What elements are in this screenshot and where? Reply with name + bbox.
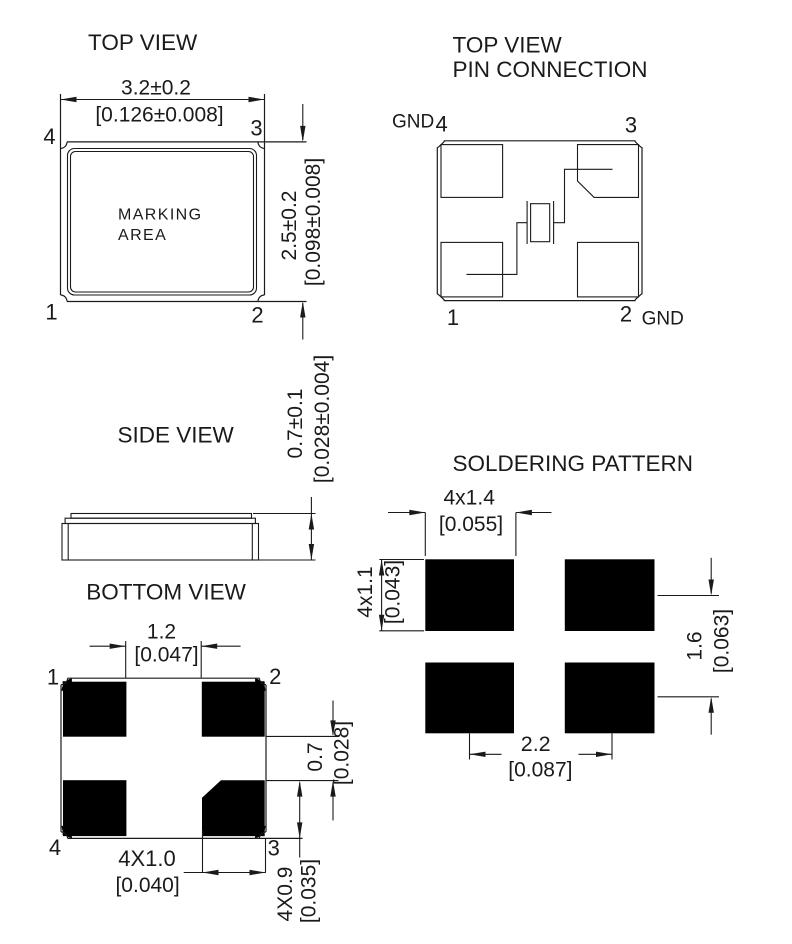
svg-text:4X0.9: 4X0.9 [274, 867, 297, 922]
svg-text:GND: GND [642, 309, 684, 330]
svg-text:[0.087]: [0.087] [508, 759, 572, 782]
svg-text:SIDE VIEW: SIDE VIEW [118, 423, 235, 448]
svg-text:2.2: 2.2 [521, 732, 551, 756]
svg-text:4x1.1: 4x1.1 [354, 566, 377, 617]
svg-text:4X1.0: 4X1.0 [118, 846, 176, 871]
svg-text:2: 2 [620, 302, 632, 327]
svg-text:[0.063]: [0.063] [711, 609, 734, 673]
svg-text:PIN CONNECTION: PIN CONNECTION [453, 57, 648, 82]
svg-text:AREA: AREA [118, 227, 167, 244]
svg-text:[0.040]: [0.040] [115, 874, 179, 897]
svg-text:[0.047]: [0.047] [134, 644, 198, 667]
svg-text:1.2: 1.2 [147, 621, 176, 644]
svg-text:[0.028±0.004]: [0.028±0.004] [311, 355, 334, 483]
svg-text:3: 3 [625, 113, 637, 138]
svg-text:[0.055]: [0.055] [439, 513, 503, 536]
svg-text:3.2±0.2: 3.2±0.2 [121, 77, 191, 100]
svg-text:TOP VIEW: TOP VIEW [88, 30, 198, 55]
svg-text:0.7: 0.7 [304, 742, 327, 771]
svg-text:2: 2 [269, 664, 281, 689]
svg-text:TOP VIEW: TOP VIEW [453, 33, 563, 58]
svg-text:4: 4 [43, 124, 55, 149]
svg-text:[0.126±0.008]: [0.126±0.008] [95, 104, 223, 127]
svg-text:4x1.4: 4x1.4 [444, 487, 496, 510]
svg-text:GND: GND [392, 112, 434, 133]
svg-text:[0.043]: [0.043] [382, 560, 405, 624]
svg-text:BOTTOM VIEW: BOTTOM VIEW [86, 580, 246, 605]
svg-text:2: 2 [251, 303, 263, 328]
svg-text:3: 3 [250, 116, 262, 141]
svg-text:1.6: 1.6 [684, 631, 707, 660]
svg-text:1: 1 [47, 665, 59, 690]
svg-text:1: 1 [447, 305, 459, 330]
svg-text:1: 1 [45, 300, 57, 325]
svg-text:0.7±0.1: 0.7±0.1 [284, 389, 307, 459]
svg-text:SOLDERING PATTERN: SOLDERING PATTERN [453, 451, 693, 476]
svg-text:[0.028]: [0.028] [331, 721, 354, 785]
svg-text:MARKING: MARKING [118, 207, 202, 224]
svg-text:[0.098±0.008]: [0.098±0.008] [302, 158, 325, 286]
svg-text:4: 4 [49, 835, 61, 860]
svg-text:[0.035]: [0.035] [298, 859, 321, 923]
svg-text:2.5±0.2: 2.5±0.2 [278, 191, 301, 261]
svg-text:4: 4 [435, 112, 447, 137]
svg-text:3: 3 [268, 835, 280, 860]
